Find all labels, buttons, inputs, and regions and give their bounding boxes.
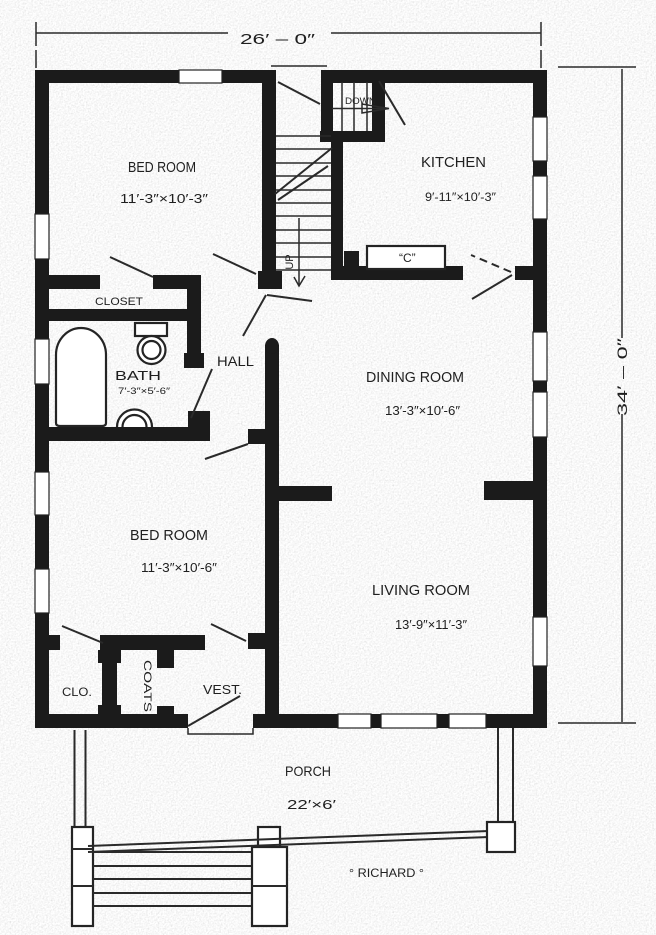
svg-text:LIVING ROOM: LIVING ROOM	[372, 582, 470, 599]
svg-text:9′-11″×10′-3″: 9′-11″×10′-3″	[425, 190, 497, 204]
svg-text:11′-3″×10′-3″: 11′-3″×10′-3″	[120, 192, 209, 206]
svg-text:34′ – 0″: 34′ – 0″	[614, 338, 630, 416]
svg-text:BED ROOM: BED ROOM	[130, 527, 208, 544]
svg-text:BATH: BATH	[115, 368, 161, 383]
svg-text:11′-3″×10′-6″: 11′-3″×10′-6″	[141, 561, 218, 575]
svg-text:HALL: HALL	[217, 353, 254, 369]
svg-text:VEST.: VEST.	[203, 682, 242, 697]
svg-text:13′-3″×10′-6″: 13′-3″×10′-6″	[385, 404, 461, 418]
svg-text:13′-9″×11′-3″: 13′-9″×11′-3″	[395, 618, 468, 632]
svg-text:UP: UP	[284, 254, 296, 269]
svg-text:COATS: COATS	[141, 660, 153, 712]
svg-text:CLO.: CLO.	[62, 685, 92, 699]
svg-text:PORCH: PORCH	[285, 763, 331, 779]
svg-text:7′-3″×5′-6″: 7′-3″×5′-6″	[118, 386, 171, 397]
svg-text:° RICHARD °: ° RICHARD °	[349, 868, 424, 880]
svg-text:BED ROOM: BED ROOM	[128, 159, 196, 176]
svg-text:22′×6′: 22′×6′	[287, 797, 337, 812]
svg-text:“C”: “C”	[399, 251, 416, 265]
svg-text:26′ – 0″: 26′ – 0″	[240, 31, 316, 48]
svg-text:DINING ROOM: DINING ROOM	[366, 369, 464, 386]
svg-text:KITCHEN: KITCHEN	[421, 154, 486, 171]
svg-text:CLOSET: CLOSET	[95, 296, 143, 308]
